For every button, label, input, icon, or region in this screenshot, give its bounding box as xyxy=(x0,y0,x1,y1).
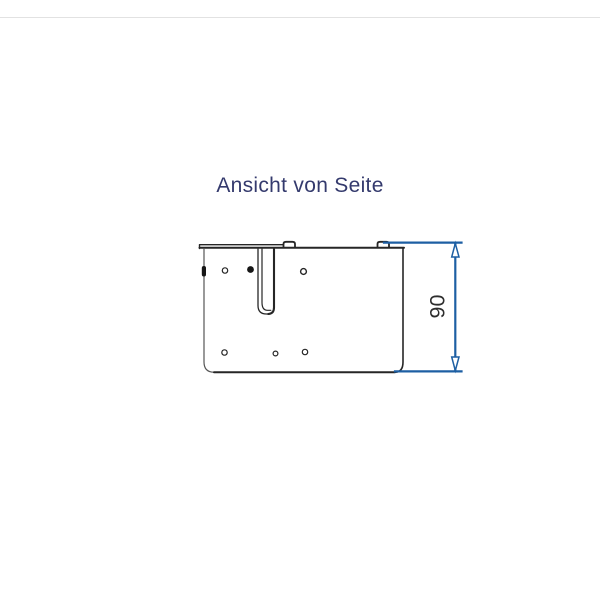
plate-right-edge xyxy=(395,249,403,373)
drawing-canvas: Ansicht von Seite xyxy=(0,0,600,600)
hole-top-left xyxy=(222,268,227,273)
slot-channel xyxy=(258,249,274,314)
slot-inner-wall xyxy=(262,249,271,310)
hole-top-right xyxy=(301,269,307,275)
top-tabs xyxy=(284,242,390,247)
dimension-90: 90 xyxy=(384,243,462,372)
dimension-label: 90 xyxy=(426,295,450,319)
hole-bottom-center xyxy=(273,351,278,356)
dimension-arrow-down-icon xyxy=(452,357,459,371)
slot-outer-wall xyxy=(258,249,269,314)
dimension-arrow-up-icon xyxy=(452,243,459,257)
top-tab-left xyxy=(284,242,296,247)
left-edge-tab xyxy=(202,266,206,277)
technical-drawing-side-view: 90 xyxy=(0,0,600,600)
slot-right-wall xyxy=(268,249,274,314)
mounting-holes xyxy=(222,266,308,356)
plate-outline xyxy=(200,245,405,373)
hole-bottom-left xyxy=(222,350,227,355)
hole-top-center-filled xyxy=(247,266,254,273)
hole-bottom-right xyxy=(302,349,307,354)
